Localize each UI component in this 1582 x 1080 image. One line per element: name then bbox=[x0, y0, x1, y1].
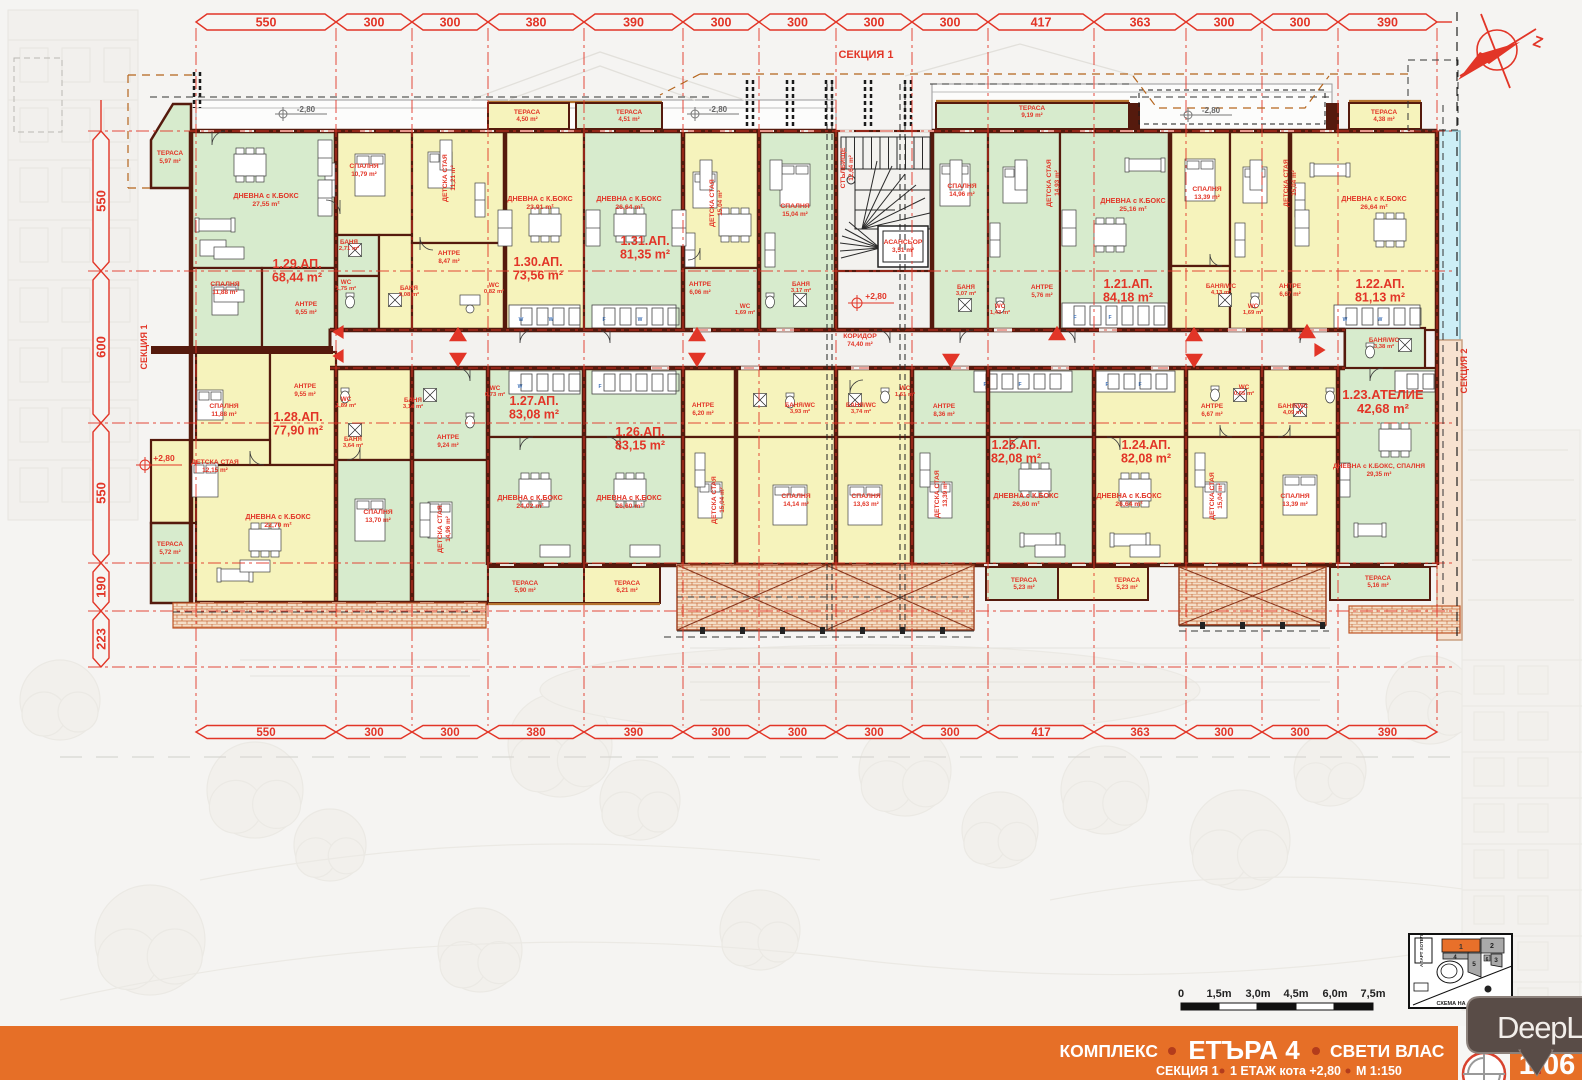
svg-text:4,5m: 4,5m bbox=[1283, 988, 1308, 1000]
svg-text:300: 300 bbox=[864, 727, 883, 739]
svg-text:300: 300 bbox=[787, 16, 808, 30]
svg-text:ТЕРАСА5,97 m²: ТЕРАСА5,97 m² bbox=[157, 150, 183, 165]
svg-text:W: W bbox=[519, 317, 524, 323]
svg-text:W: W bbox=[549, 317, 554, 323]
svg-text:300: 300 bbox=[440, 16, 461, 30]
svg-text:1 ЕТАЖ кота +2,80: 1 ЕТАЖ кота +2,80 bbox=[1230, 1064, 1341, 1078]
svg-text:СПАЛНЯ13,39 m²: СПАЛНЯ13,39 m² bbox=[1192, 186, 1221, 201]
svg-text:СЕКЦИЯ 1: СЕКЦИЯ 1 bbox=[139, 324, 149, 369]
svg-text:F: F bbox=[1018, 382, 1021, 388]
svg-text:1.29.АП.68,44 m²: 1.29.АП.68,44 m² bbox=[272, 257, 322, 285]
svg-text:300: 300 bbox=[364, 727, 383, 739]
svg-text:1.26.АП.83,15 m²: 1.26.АП.83,15 m² bbox=[615, 425, 665, 453]
svg-text:ТЕРАСА5,16 m²: ТЕРАСА5,16 m² bbox=[1365, 575, 1391, 589]
svg-text:1.28.АП.77,90 m²: 1.28.АП.77,90 m² bbox=[273, 410, 323, 438]
svg-text:390: 390 bbox=[1378, 727, 1397, 739]
svg-text:W: W bbox=[518, 384, 523, 390]
svg-text:F: F bbox=[602, 317, 605, 323]
svg-text:1.31.АП.81,35 m²: 1.31.АП.81,35 m² bbox=[620, 234, 670, 262]
svg-text:1: 1 bbox=[1459, 944, 1463, 951]
svg-text:300: 300 bbox=[364, 16, 385, 30]
svg-text:300: 300 bbox=[940, 727, 959, 739]
svg-text:3: 3 bbox=[1494, 957, 1498, 964]
svg-text:ТЕРАСА6,21 m²: ТЕРАСА6,21 m² bbox=[614, 580, 640, 594]
svg-text:ТЕРАСА4,38 m²: ТЕРАСА4,38 m² bbox=[1371, 109, 1397, 123]
svg-text:ТЕРАСА5,23 m²: ТЕРАСА5,23 m² bbox=[1011, 577, 1037, 591]
svg-text:550: 550 bbox=[256, 727, 275, 739]
svg-text:1.27.АП.83,08 m²: 1.27.АП.83,08 m² bbox=[509, 394, 559, 422]
svg-text:СЕКЦИЯ 2: СЕКЦИЯ 2 bbox=[1459, 348, 1469, 393]
svg-text:F: F bbox=[1073, 315, 1076, 321]
svg-text:ТЕРАСА4,51 m²: ТЕРАСА4,51 m² bbox=[616, 109, 642, 123]
svg-text:300: 300 bbox=[440, 727, 459, 739]
svg-text:300: 300 bbox=[1290, 727, 1309, 739]
svg-text:ТЕРАСА4,50 m²: ТЕРАСА4,50 m² bbox=[514, 109, 540, 123]
svg-text:F: F bbox=[598, 384, 601, 390]
svg-text:СПАЛНЯ10,79 m²: СПАЛНЯ10,79 m² bbox=[349, 163, 378, 178]
svg-text:СВЕТИ ВЛАС: СВЕТИ ВЛАС bbox=[1330, 1041, 1445, 1061]
svg-text:М 1:150: М 1:150 bbox=[1356, 1064, 1402, 1078]
svg-text:КОМПЛЕКС: КОМПЛЕКС bbox=[1060, 1041, 1159, 1061]
svg-text:300: 300 bbox=[1214, 727, 1233, 739]
svg-text:1,5m: 1,5m bbox=[1206, 988, 1231, 1000]
svg-text:300: 300 bbox=[1214, 16, 1235, 30]
svg-text:380: 380 bbox=[526, 16, 547, 30]
svg-text:ЕТЪРА 4: ЕТЪРА 4 bbox=[1188, 1035, 1300, 1065]
svg-text:ТЕРАСА9,19 m²: ТЕРАСА9,19 m² bbox=[1019, 105, 1045, 119]
svg-text:3,0m: 3,0m bbox=[1245, 988, 1270, 1000]
svg-text:СПАЛНЯ14,96 m²: СПАЛНЯ14,96 m² bbox=[947, 183, 976, 198]
svg-text:АНТРЕ5,76 m²: АНТРЕ5,76 m² bbox=[1031, 284, 1054, 299]
svg-text:АНТРЕ9,55 m²: АНТРЕ9,55 m² bbox=[294, 383, 317, 398]
svg-text:АНТРЕ9,55 m²: АНТРЕ9,55 m² bbox=[295, 301, 318, 316]
svg-text:363: 363 bbox=[1130, 727, 1149, 739]
svg-text:190: 190 bbox=[94, 576, 109, 598]
svg-text:300: 300 bbox=[864, 16, 885, 30]
svg-text:АНТРЕ8,36 m²: АНТРЕ8,36 m² bbox=[933, 403, 956, 418]
svg-text:300: 300 bbox=[940, 16, 961, 30]
svg-text:АНТРЕ8,47 m²: АНТРЕ8,47 m² bbox=[438, 250, 461, 265]
svg-text:380: 380 bbox=[526, 727, 545, 739]
svg-text:300: 300 bbox=[711, 16, 732, 30]
svg-text:390: 390 bbox=[1377, 16, 1398, 30]
svg-text:СПАЛНЯ13,70 m²: СПАЛНЯ13,70 m² bbox=[363, 509, 392, 524]
svg-text:АНТРЕ9,24 m²: АНТРЕ9,24 m² bbox=[437, 434, 460, 449]
svg-text:300: 300 bbox=[711, 727, 730, 739]
svg-text:СПАЛНЯ14,14 m²: СПАЛНЯ14,14 m² bbox=[781, 493, 810, 508]
svg-text:БАНЯ3,08 m²: БАНЯ3,08 m² bbox=[399, 285, 419, 298]
svg-text:0: 0 bbox=[1178, 988, 1184, 1000]
svg-text:1.21.АП.84,18 m²: 1.21.АП.84,18 m² bbox=[1103, 277, 1153, 305]
svg-text:W: W bbox=[638, 317, 643, 323]
svg-text:300: 300 bbox=[788, 727, 807, 739]
svg-text:АНТРЕ6,06 m²: АНТРЕ6,06 m² bbox=[689, 281, 712, 296]
svg-text:1.24.АП.82,08 m²: 1.24.АП.82,08 m² bbox=[1121, 438, 1171, 466]
svg-text:223: 223 bbox=[94, 628, 109, 650]
svg-text:7,5m: 7,5m bbox=[1360, 988, 1385, 1000]
svg-text:БАНЯ3,64 m²: БАНЯ3,64 m² bbox=[343, 436, 363, 449]
svg-text:1.22.АП.81,13 m²: 1.22.АП.81,13 m² bbox=[1355, 277, 1405, 305]
svg-text:+2,80: +2,80 bbox=[153, 453, 175, 463]
svg-text:F: F bbox=[1108, 315, 1111, 321]
svg-text:W: W bbox=[1343, 317, 1348, 323]
svg-text:550: 550 bbox=[94, 190, 109, 212]
svg-text:СПАЛНЯ11,88 m²: СПАЛНЯ11,88 m² bbox=[210, 281, 239, 296]
svg-text:БАНЯ3,14 m²: БАНЯ3,14 m² bbox=[403, 397, 423, 410]
svg-text:ТЕРАСА5,23 m²: ТЕРАСА5,23 m² bbox=[1114, 577, 1140, 591]
svg-text:390: 390 bbox=[624, 727, 643, 739]
svg-text:-2,80: -2,80 bbox=[709, 105, 728, 114]
svg-text:-2,80: -2,80 bbox=[297, 105, 316, 114]
svg-text:ТЕРАСА5,72 m²: ТЕРАСА5,72 m² bbox=[157, 541, 183, 556]
svg-text:363: 363 bbox=[1130, 16, 1151, 30]
svg-text:АПАРТ ХОТЕЛ: АПАРТ ХОТЕЛ bbox=[1419, 935, 1424, 967]
svg-text:СПАЛНЯ13,39 m²: СПАЛНЯ13,39 m² bbox=[1280, 493, 1309, 508]
svg-text:1.30.АП.73,56 m²: 1.30.АП.73,56 m² bbox=[513, 255, 563, 283]
svg-text:БАНЯ2,71 m²: БАНЯ2,71 m² bbox=[339, 239, 359, 252]
svg-text:СЕКЦИЯ 1: СЕКЦИЯ 1 bbox=[1156, 1064, 1219, 1078]
svg-text:СХЕМА НА: СХЕМА НА bbox=[1436, 1001, 1465, 1007]
svg-text:F: F bbox=[1138, 382, 1141, 388]
svg-text:300: 300 bbox=[1290, 16, 1311, 30]
svg-text:АНТРЕ6,67 m²: АНТРЕ6,67 m² bbox=[1201, 403, 1224, 418]
svg-text:АНТРЕ6,67 m²: АНТРЕ6,67 m² bbox=[1279, 283, 1302, 298]
svg-text:СПАЛНЯ13,63 m²: СПАЛНЯ13,63 m² bbox=[851, 493, 880, 508]
svg-text:6,0m: 6,0m bbox=[1322, 988, 1347, 1000]
svg-text:W: W bbox=[1378, 317, 1383, 323]
svg-text:СЕКЦИЯ 1: СЕКЦИЯ 1 bbox=[838, 49, 893, 61]
svg-text:F: F bbox=[1105, 382, 1108, 388]
svg-text:6: 6 bbox=[1486, 957, 1489, 963]
svg-text:390: 390 bbox=[623, 16, 644, 30]
svg-text:АНТРЕ6,20 m²: АНТРЕ6,20 m² bbox=[692, 402, 715, 417]
svg-text:+2,80: +2,80 bbox=[865, 291, 887, 301]
svg-text:550: 550 bbox=[94, 482, 109, 504]
svg-text:550: 550 bbox=[256, 16, 277, 30]
svg-text:417: 417 bbox=[1031, 16, 1052, 30]
svg-text:БАНЯ3,17 m²: БАНЯ3,17 m² bbox=[791, 281, 811, 294]
svg-text:1.25.АП.82,08 m²: 1.25.АП.82,08 m² bbox=[991, 438, 1041, 466]
svg-text:ТЕРАСА5,90 m²: ТЕРАСА5,90 m² bbox=[512, 580, 538, 594]
svg-text:5: 5 bbox=[1472, 961, 1476, 968]
svg-text:417: 417 bbox=[1031, 727, 1050, 739]
svg-text:600: 600 bbox=[94, 336, 109, 358]
svg-text:КОРИДОР74,40 m²: КОРИДОР74,40 m² bbox=[843, 333, 877, 348]
svg-text:-2,80: -2,80 bbox=[1202, 106, 1221, 115]
svg-text:СПАЛНЯ11,88 m²: СПАЛНЯ11,88 m² bbox=[209, 403, 238, 418]
svg-text:DeepL: DeepL bbox=[1497, 1010, 1582, 1045]
svg-text:СПАЛНЯ15,04 m²: СПАЛНЯ15,04 m² bbox=[780, 203, 809, 218]
svg-text:БАНЯ3,07 m²: БАНЯ3,07 m² bbox=[956, 284, 976, 297]
svg-text:2: 2 bbox=[1490, 943, 1494, 950]
